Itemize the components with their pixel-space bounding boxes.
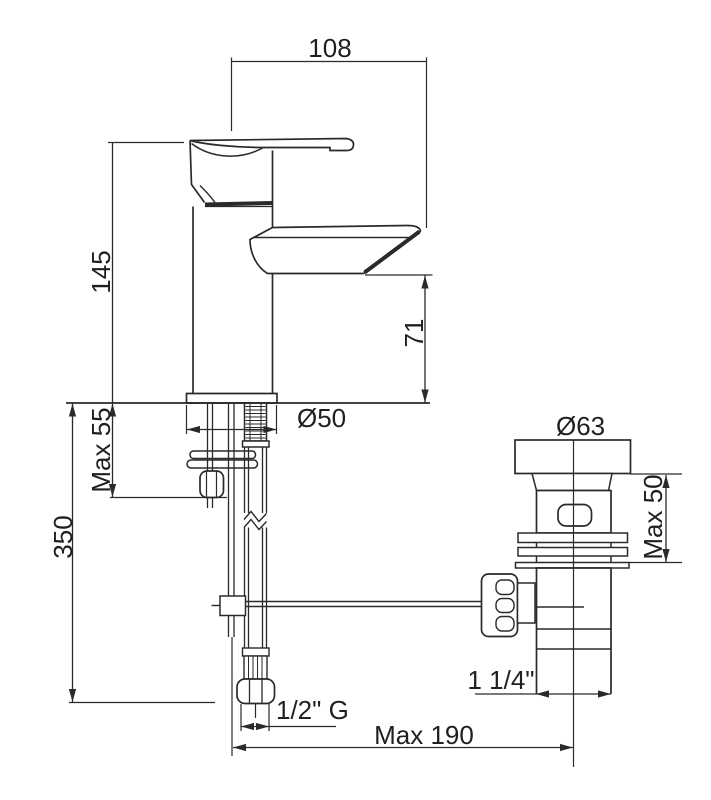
supply-hose-lower <box>245 528 267 649</box>
label-supply-hose-length: 350 <box>48 515 78 558</box>
waste-flange <box>515 440 631 474</box>
mounting-washer-2 <box>187 460 258 468</box>
label-max-deck-thickness-waste: Max 50 <box>638 474 668 559</box>
rod-clamp-block <box>220 596 246 616</box>
label-base-diameter: Ø50 <box>297 403 346 433</box>
shank-collar <box>243 441 270 447</box>
label-supply-connection-thread: 1/2" G <box>276 695 349 725</box>
dim-145-group <box>108 143 184 404</box>
base-flange <box>187 394 278 404</box>
label-spout-projection: 108 <box>308 33 351 63</box>
waste-washer-2 <box>518 548 628 557</box>
label-max-rod-reach: Max 190 <box>374 720 474 750</box>
horizontal-linkage-rod <box>246 602 483 607</box>
hose-end-collar <box>243 648 270 656</box>
mixer-above-deck <box>187 139 421 404</box>
label-max-deck-thickness-mixer: Max 55 <box>86 407 116 492</box>
label-waste-flange-diameter: Ø63 <box>556 411 605 441</box>
hose-corrugated-section <box>244 656 267 679</box>
lever-handle-blade <box>190 139 354 151</box>
waste-washer-1 <box>518 533 628 543</box>
mixer-below-deck <box>187 403 482 704</box>
waste-neck <box>532 474 612 491</box>
waste-side-opening <box>558 505 592 527</box>
label-waste-outlet-thread: 1 1/4" <box>467 665 534 695</box>
handle-bottom-seam <box>205 203 272 205</box>
threaded-shank <box>245 403 267 441</box>
mounting-nut <box>200 471 224 498</box>
label-body-height: 145 <box>86 250 116 293</box>
supply-hose-nut <box>237 679 275 704</box>
technical-drawing-page: 108 145 71 Max 55 350 Ø50 Ø63 Max 50 1 1… <box>0 0 711 800</box>
popup-waste-assembly <box>482 440 631 694</box>
technical-drawing-canvas: 108 145 71 Max 55 350 Ø50 Ø63 Max 50 1 1… <box>0 0 711 800</box>
mounting-washer-1 <box>190 451 256 459</box>
hose-break-symbol <box>244 512 267 530</box>
label-spout-outlet-height: 71 <box>399 319 429 348</box>
knurled-knob <box>482 574 536 637</box>
